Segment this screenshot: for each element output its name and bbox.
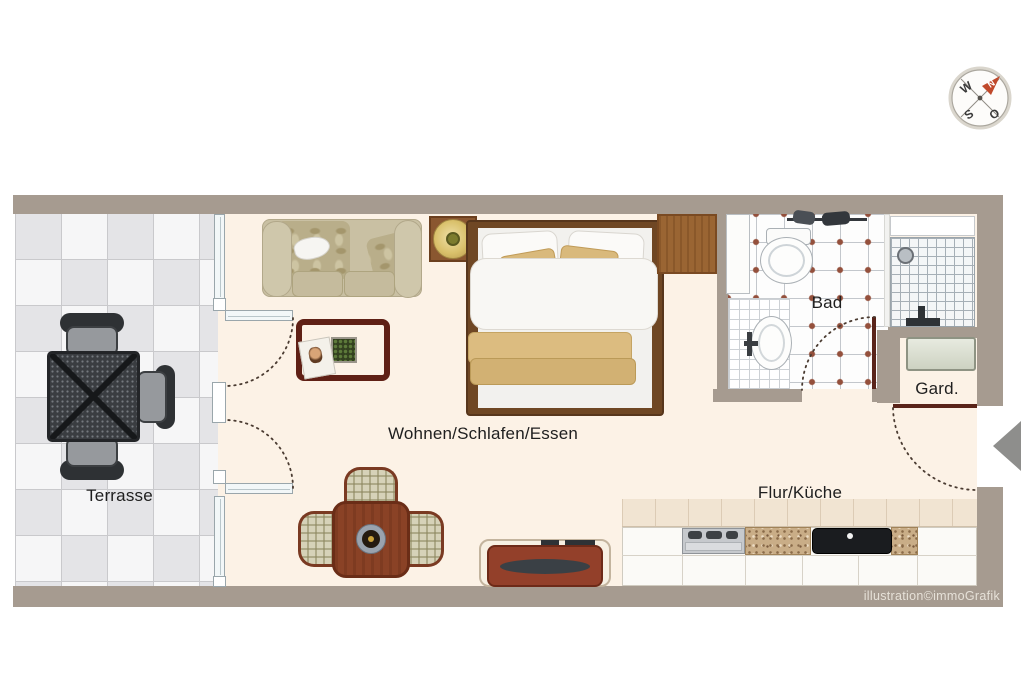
toilet-seat	[768, 244, 805, 277]
label-terrace: Terrasse	[72, 486, 167, 506]
counter-divider	[745, 555, 746, 585]
table-bowl-fruit	[368, 536, 374, 542]
terrace-table	[47, 351, 140, 442]
basin-faucet-spout	[744, 341, 758, 346]
wall-bath-bottom-left	[713, 389, 802, 402]
stove-burner	[726, 531, 738, 539]
table-lamp-center	[446, 232, 460, 246]
counter-divider	[802, 555, 803, 585]
sink-faucet	[847, 533, 853, 539]
dining-chair	[404, 511, 444, 567]
washbasin-bowl	[758, 324, 785, 362]
label-hall-kitchen: Flur/Küche	[738, 483, 862, 503]
sofa-arm-left	[262, 221, 292, 297]
kitchen-worktop	[745, 527, 811, 555]
window-post	[213, 470, 226, 484]
entrance-arrow-icon	[993, 421, 1021, 471]
wall-bath-corner	[877, 330, 900, 403]
label-bath: Bad	[799, 293, 855, 313]
bed-blanket	[470, 358, 636, 385]
bathroom-cabinet	[726, 214, 750, 294]
stove-panel	[685, 542, 742, 551]
window	[214, 496, 225, 578]
sideboard-item	[541, 540, 559, 545]
plant-box	[331, 337, 357, 363]
compass-icon: W N S O	[947, 65, 1013, 131]
label-wardrobe: Gard.	[903, 379, 971, 399]
bathroom-door	[872, 317, 876, 389]
window-post	[212, 382, 226, 423]
illustration-credit: illustration©immoGrafik	[810, 589, 1000, 603]
terrace-door-leaf	[225, 310, 293, 321]
sofa-seat-cushion	[292, 271, 343, 297]
kitchen-floor-tiles	[622, 499, 977, 527]
stove-burner	[688, 531, 702, 539]
stove-burner	[706, 531, 722, 539]
shower-head-icon	[897, 247, 914, 264]
label-living: Wohnen/Schlafen/Essen	[368, 424, 598, 444]
shower-fixture-stem	[918, 306, 925, 322]
sofa-seat-cushion	[344, 271, 395, 297]
terrace-chair	[137, 371, 167, 423]
kitchen-sink	[812, 528, 892, 554]
counter-shelf-line	[622, 555, 977, 556]
sofa-arm-right	[394, 220, 422, 298]
sideboard-item	[565, 540, 595, 545]
nightstand	[657, 214, 717, 274]
bed-duvet-fold	[470, 258, 658, 330]
floor-plan: Terrasse Wohnen/Schlafen/Essen Bad Gard.…	[0, 0, 1024, 683]
terrace-door-leaf	[225, 483, 293, 494]
sideboard-tv	[500, 559, 590, 574]
wall-right-upper	[977, 195, 1003, 406]
entrance-door	[893, 404, 977, 408]
bathroom-window	[890, 216, 975, 236]
towel	[821, 211, 850, 226]
window-post	[213, 576, 226, 587]
kitchen-worktop	[891, 527, 918, 555]
wardrobe-cabinet	[906, 337, 976, 371]
counter-divider	[858, 555, 859, 585]
window	[214, 214, 225, 300]
wall-top	[13, 195, 1003, 214]
